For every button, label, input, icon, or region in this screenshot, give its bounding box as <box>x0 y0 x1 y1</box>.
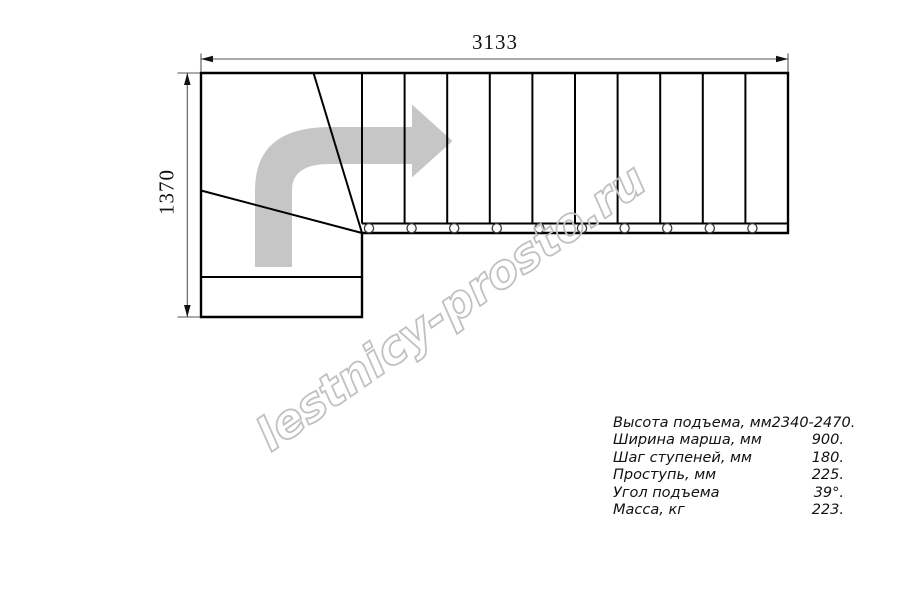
spec-label: Масса, кг <box>613 502 685 519</box>
spec-value: 39°. <box>814 485 844 502</box>
dimension-arrowhead <box>776 56 788 63</box>
baluster-circle <box>748 224 757 233</box>
spec-value: 180. <box>812 450 844 467</box>
baluster-circle <box>663 224 672 233</box>
spec-row-flight-width: Ширина марша, мм 900. <box>613 432 844 449</box>
dimension-arrowhead <box>201 56 213 63</box>
spec-value: 223. <box>812 502 844 519</box>
spec-label: Проступь, мм <box>613 467 716 484</box>
spec-row-tread: Проступь, мм 225. <box>613 467 844 484</box>
dimension-left <box>178 73 201 317</box>
spec-value: 900. <box>812 432 844 449</box>
width-dimension-label: 3133 <box>450 30 540 55</box>
baluster-circle <box>364 224 373 233</box>
spec-row-rise-height: Высота подъема, мм 2340-2470. <box>613 415 844 432</box>
baluster-circle <box>407 224 416 233</box>
watermark-text: lestnicy-prosto.ru <box>246 152 656 461</box>
spec-row-step-pitch: Шаг ступеней, мм 180. <box>613 450 844 467</box>
staircase-drawing-page: lestnicy-prosto.ru 3133 1370 Высота подъ… <box>0 0 900 600</box>
spec-label: Ширина марша, мм <box>613 432 762 449</box>
direction-arrow <box>255 105 453 268</box>
spec-label: Угол подъема <box>613 485 720 502</box>
spec-label: Шаг ступеней, мм <box>613 450 752 467</box>
spec-value: 225. <box>812 467 844 484</box>
spec-value: 2340-2470. <box>772 415 856 432</box>
baluster-circle <box>620 224 629 233</box>
spec-row-mass: Масса, кг 223. <box>613 502 844 519</box>
dimension-top <box>201 54 788 73</box>
dimension-arrowhead <box>184 73 191 85</box>
baluster-circle <box>450 224 459 233</box>
dimension-arrowhead <box>184 305 191 317</box>
spec-row-rise-angle: Угол подъема 39°. <box>613 485 844 502</box>
spec-table: Высота подъема, мм 2340-2470. Ширина мар… <box>613 415 844 519</box>
baluster-circle <box>705 224 714 233</box>
depth-dimension-label: 1370 <box>155 169 180 215</box>
spec-label: Высота подъема, мм <box>613 415 772 432</box>
baluster-circle <box>492 224 501 233</box>
